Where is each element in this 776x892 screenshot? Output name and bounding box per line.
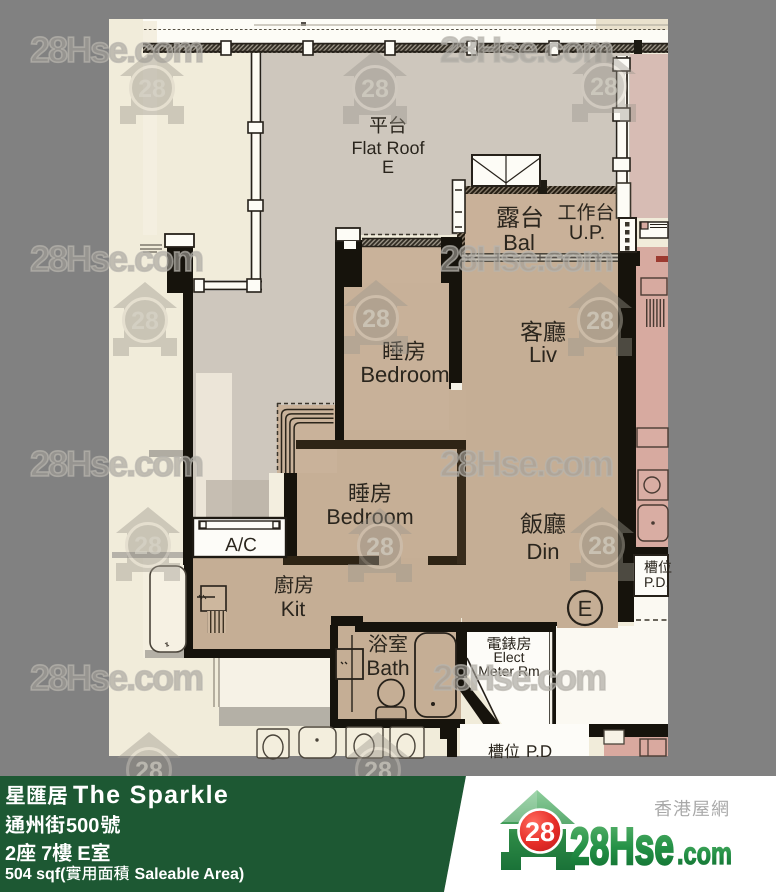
svg-text:28Hse.com: 28Hse.com <box>30 443 202 484</box>
svg-text:Kit: Kit <box>281 598 306 621</box>
svg-text:7: 7 <box>41 843 52 865</box>
svg-text:28: 28 <box>588 532 616 560</box>
svg-text:500: 500 <box>66 815 99 837</box>
svg-text:P.D.: P.D. <box>644 574 669 590</box>
svg-text:28Hse.com: 28Hse.com <box>440 443 612 484</box>
svg-text:2: 2 <box>5 843 16 865</box>
svg-text:28: 28 <box>361 75 389 103</box>
svg-text:28Hse: 28Hse <box>570 818 674 876</box>
svg-text:Din: Din <box>526 539 559 564</box>
svg-text:E: E <box>382 157 394 177</box>
svg-text:Flat Roof: Flat Roof <box>351 138 425 158</box>
svg-text:A/C: A/C <box>225 535 257 556</box>
svg-text:E: E <box>578 596 593 621</box>
svg-text:.com: .com <box>677 836 732 871</box>
svg-text:Bedroom: Bedroom <box>360 362 449 387</box>
svg-text:28Hse.com: 28Hse.com <box>30 657 202 698</box>
svg-text:28: 28 <box>525 817 555 847</box>
svg-text:28: 28 <box>131 307 159 335</box>
svg-text:Saleable Area): Saleable Area) <box>135 866 245 883</box>
svg-text:The Sparkle: The Sparkle <box>73 781 229 809</box>
svg-text:28: 28 <box>138 75 166 103</box>
svg-text:28: 28 <box>586 307 614 335</box>
svg-text:E: E <box>77 843 90 865</box>
svg-text:28Hse.com: 28Hse.com <box>30 238 202 279</box>
svg-text:Liv: Liv <box>529 342 557 367</box>
svg-text:28: 28 <box>362 305 390 333</box>
svg-text:P.D: P.D <box>526 742 552 761</box>
svg-text:28: 28 <box>366 533 394 561</box>
svg-text:28Hse.com: 28Hse.com <box>30 29 202 70</box>
svg-text:28: 28 <box>134 532 162 560</box>
svg-text:28: 28 <box>590 73 618 101</box>
svg-text:504 sqf(: 504 sqf( <box>5 866 66 883</box>
svg-text:28Hse.com: 28Hse.com <box>433 657 605 698</box>
svg-text:28Hse.com: 28Hse.com <box>440 238 612 279</box>
svg-text:Bath: Bath <box>366 657 409 680</box>
